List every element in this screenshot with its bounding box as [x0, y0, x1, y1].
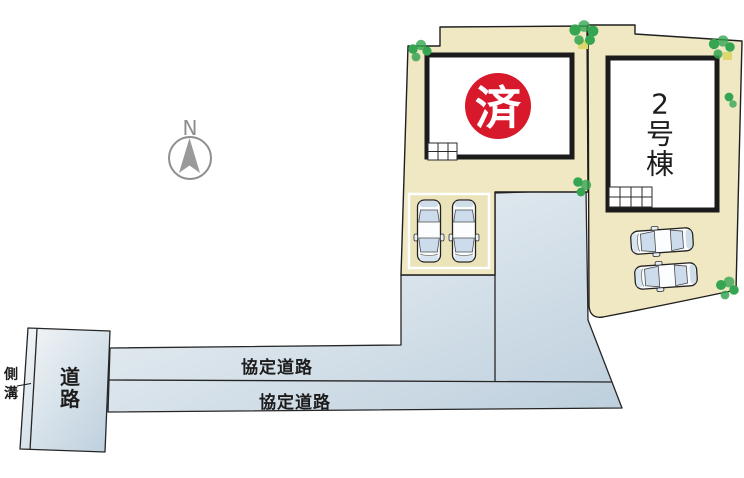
car-icon: [449, 200, 479, 262]
svg-text:溝: 溝: [4, 385, 18, 402]
entrance-porch-grid: [609, 187, 652, 207]
site-plan-drawing: 済 2 号 棟 協定道路 協定道路 道 路 側 溝: [0, 0, 744, 478]
car-icon: [414, 200, 444, 262]
site-plan-canvas: 済 2 号 棟 協定道路 協定道路 道 路 側 溝: [0, 0, 744, 478]
compass-north-label: N: [183, 116, 198, 140]
svg-text:路: 路: [60, 387, 81, 411]
svg-text:号: 号: [646, 118, 674, 151]
svg-text:側: 側: [3, 366, 18, 383]
sold-stamp-label: 済: [475, 81, 522, 135]
agreement-road-label-2: 協定道路: [259, 392, 331, 413]
svg-text:道: 道: [60, 365, 80, 389]
svg-text:棟: 棟: [646, 148, 674, 181]
svg-text:2: 2: [651, 88, 669, 121]
agreement-road-label-1: 協定道路: [241, 357, 313, 378]
sold-stamp: 済: [465, 73, 531, 139]
left-road-label: 道 路: [60, 365, 81, 411]
entrance-porch-grid: [428, 143, 457, 160]
